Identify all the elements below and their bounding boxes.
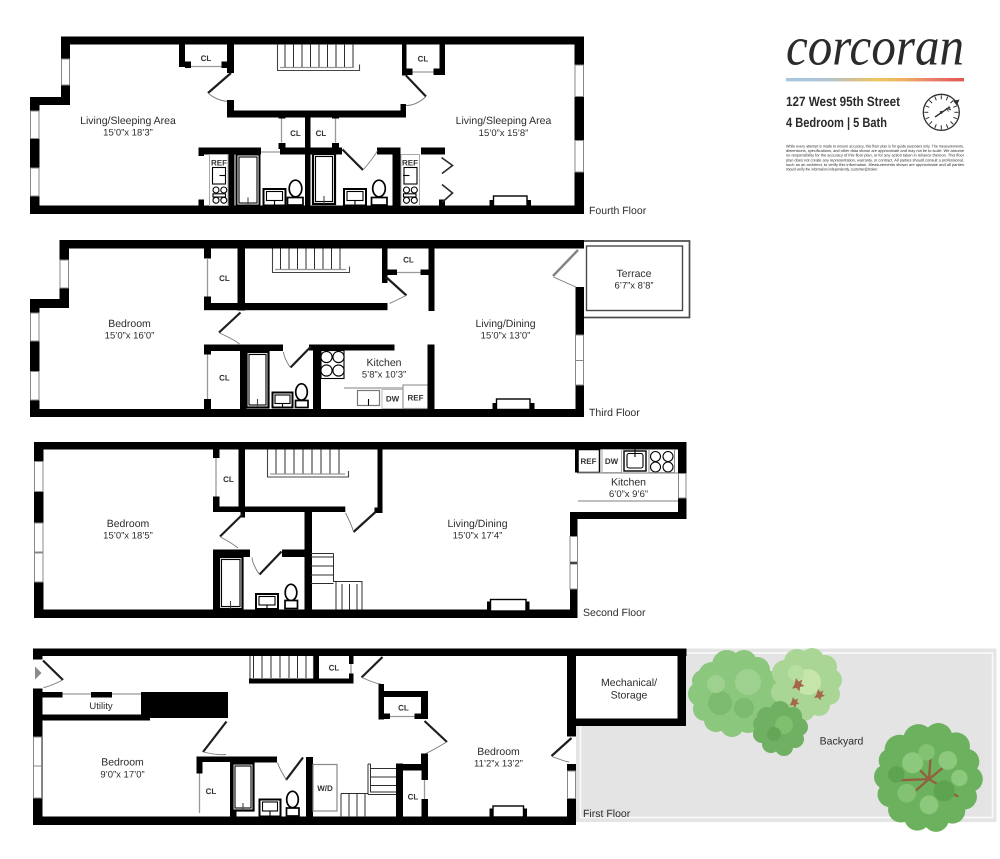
svg-text:15’0”x 15’8”: 15’0”x 15’8” bbox=[479, 128, 529, 139]
svg-text:CL: CL bbox=[201, 54, 212, 63]
svg-text:First Floor: First Floor bbox=[583, 808, 631, 820]
svg-text:Kitchen: Kitchen bbox=[366, 357, 401, 369]
svg-text:CL: CL bbox=[290, 129, 301, 138]
svg-text:Fourth Floor: Fourth Floor bbox=[589, 205, 647, 217]
svg-text:CL: CL bbox=[398, 704, 409, 713]
svg-text:Mechanical/: Mechanical/ bbox=[601, 677, 657, 689]
svg-text:15’0”x 18’3”: 15’0”x 18’3” bbox=[103, 128, 153, 139]
svg-text:REF: REF bbox=[408, 394, 424, 403]
svg-text:CL: CL bbox=[316, 129, 327, 138]
svg-text:Living/Dining: Living/Dining bbox=[475, 318, 535, 330]
svg-text:Backyard: Backyard bbox=[820, 736, 864, 748]
svg-text:15’0”x 13’0”: 15’0”x 13’0” bbox=[481, 331, 531, 342]
svg-text:15’0”x 17’4”: 15’0”x 17’4” bbox=[453, 531, 503, 542]
svg-text:Storage: Storage bbox=[611, 690, 648, 702]
svg-text:corcoran: corcoran bbox=[786, 17, 964, 77]
svg-text:Bedroom: Bedroom bbox=[101, 757, 144, 769]
svg-text:DW: DW bbox=[386, 395, 400, 404]
svg-text:DW: DW bbox=[605, 457, 619, 466]
svg-text:CL: CL bbox=[219, 374, 230, 383]
svg-text:6’0”x 9’6”: 6’0”x 9’6” bbox=[609, 489, 648, 500]
svg-text:Kitchen: Kitchen bbox=[611, 477, 646, 489]
svg-text:W/D: W/D bbox=[317, 784, 333, 793]
svg-text:CL: CL bbox=[219, 274, 230, 283]
svg-text:CL: CL bbox=[206, 787, 217, 796]
svg-text:Living/Sleeping Area: Living/Sleeping Area bbox=[456, 115, 552, 127]
svg-text:CL: CL bbox=[418, 55, 429, 64]
svg-text:Third Floor: Third Floor bbox=[589, 407, 640, 419]
svg-text:Bedroom: Bedroom bbox=[477, 746, 520, 758]
svg-text:CL: CL bbox=[408, 793, 419, 802]
svg-text:Terrace: Terrace bbox=[616, 268, 651, 280]
svg-text:REF: REF bbox=[211, 159, 227, 168]
svg-text:REF: REF bbox=[581, 457, 597, 466]
svg-text:Bedroom: Bedroom bbox=[108, 318, 151, 330]
svg-text:Bedroom: Bedroom bbox=[107, 518, 150, 530]
svg-text:Utility: Utility bbox=[89, 701, 112, 712]
svg-text:Second Floor: Second Floor bbox=[583, 607, 646, 619]
svg-text:CL: CL bbox=[403, 256, 414, 265]
svg-text:Living/Dining: Living/Dining bbox=[447, 518, 507, 530]
svg-text:6’7”x 8’8”: 6’7”x 8’8” bbox=[614, 281, 653, 292]
svg-text:4 Bedroom | 5 Bath: 4 Bedroom | 5 Bath bbox=[786, 115, 887, 130]
svg-text:Living/Sleeping Area: Living/Sleeping Area bbox=[80, 115, 176, 127]
svg-text:11’2”x 13’2”: 11’2”x 13’2” bbox=[474, 759, 523, 770]
svg-text:CL: CL bbox=[223, 475, 234, 484]
svg-text:127 West 95th Street: 127 West 95th Street bbox=[786, 94, 900, 109]
svg-text:CL: CL bbox=[329, 664, 340, 673]
svg-text:15’0”x 18’5”: 15’0”x 18’5” bbox=[103, 531, 153, 542]
svg-text:REF: REF bbox=[402, 159, 418, 168]
svg-text:should verify the information: should verify the information independen… bbox=[786, 167, 878, 172]
svg-text:15’0”x 16’0”: 15’0”x 16’0” bbox=[105, 331, 155, 342]
svg-text:5’8”x 10’3”: 5’8”x 10’3” bbox=[362, 370, 406, 381]
svg-text:9’0”x 17’0”: 9’0”x 17’0” bbox=[100, 770, 144, 781]
